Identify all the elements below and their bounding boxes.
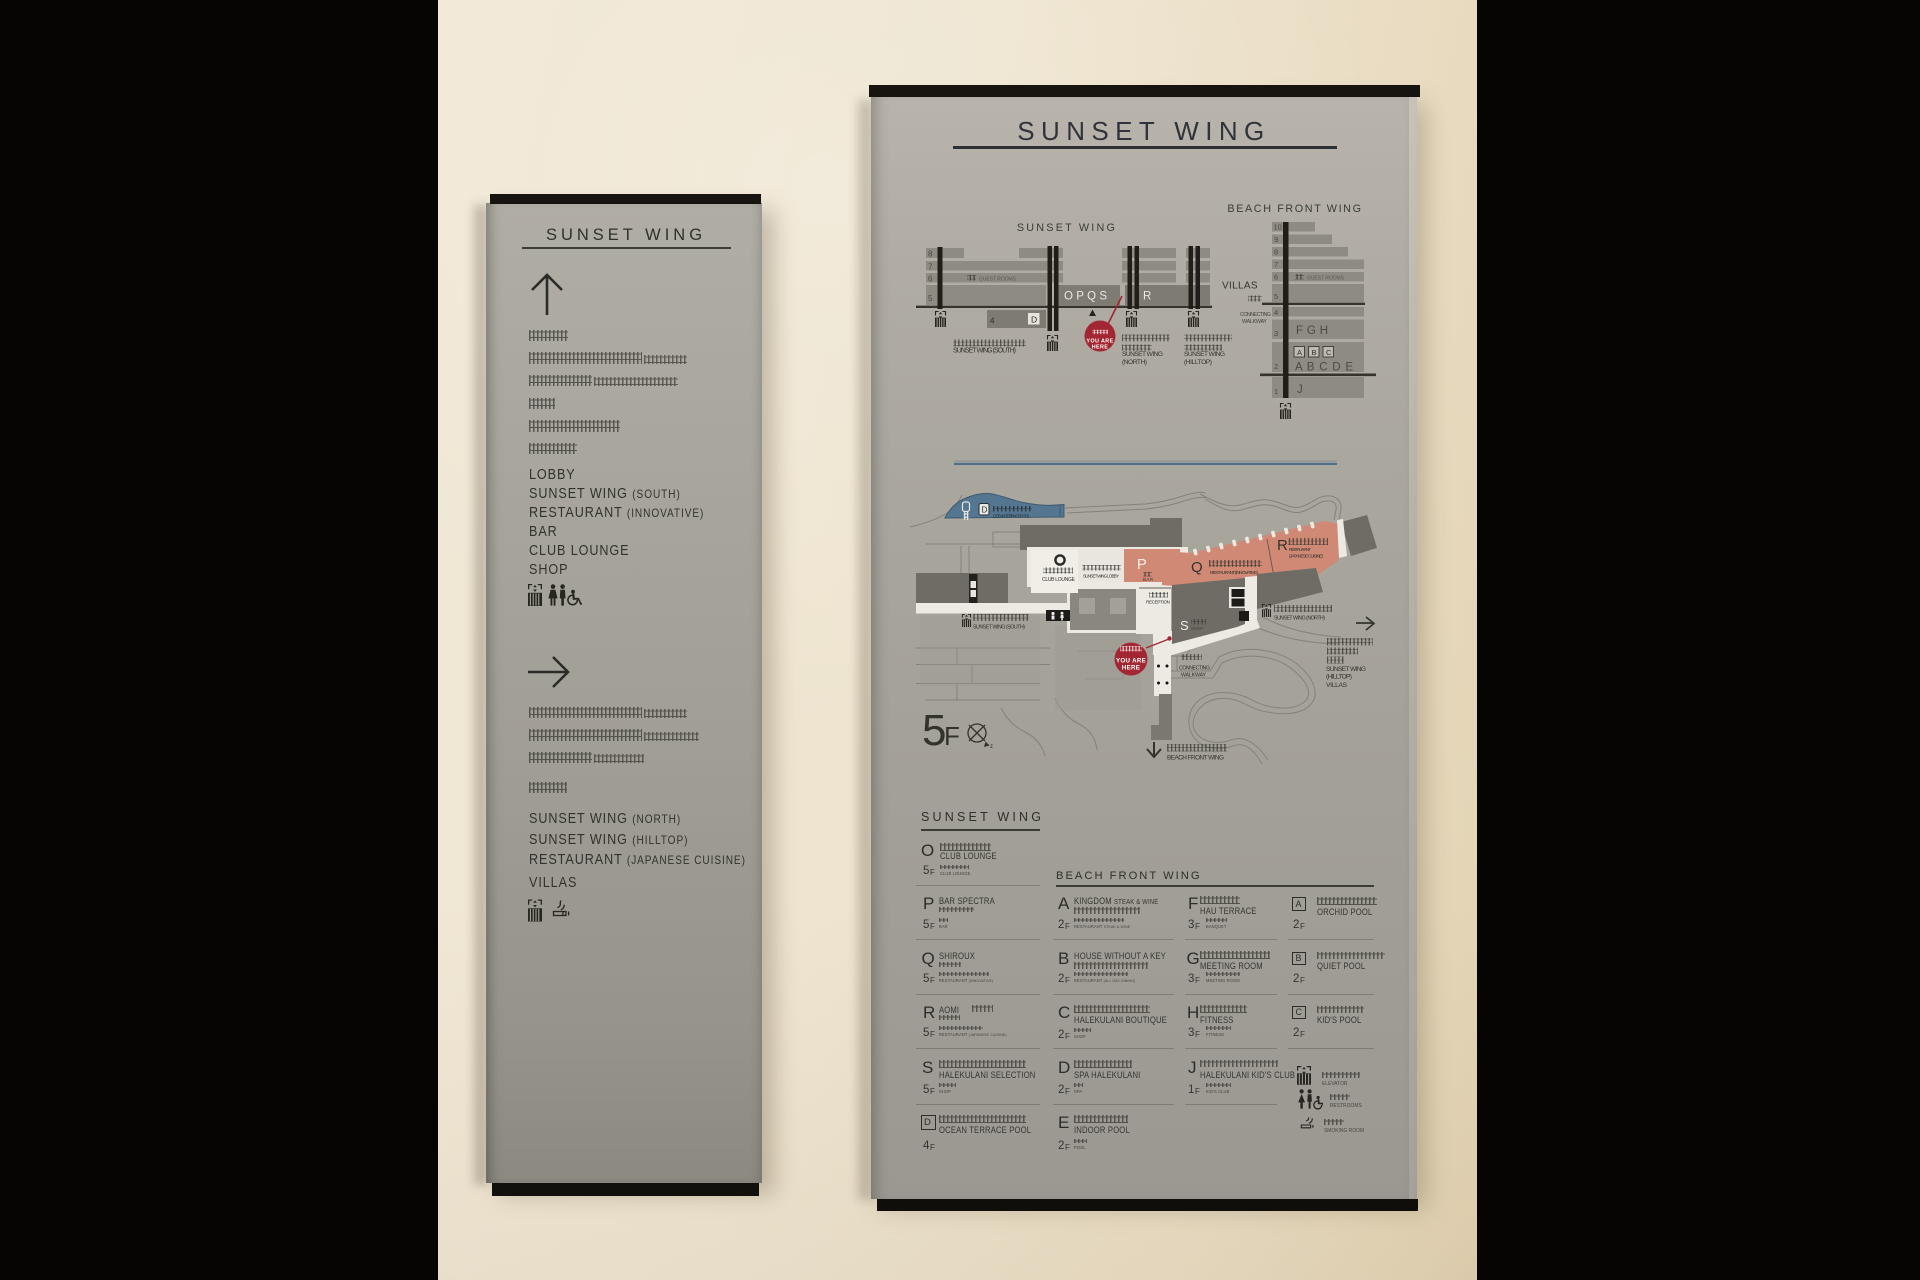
svg-text:5: 5 (922, 706, 946, 755)
svg-text:YOU ARE: YOU ARE (1116, 658, 1146, 665)
svg-text:GUEST ROOMS: GUEST ROOMS (1307, 276, 1345, 282)
svg-text:RESTAURANT: RESTAURANT (1289, 547, 1311, 552)
svg-text:D: D (982, 505, 988, 514)
svg-text:B: B (1312, 348, 1317, 357)
svg-text:SUNSET WING LOBBY: SUNSET WING LOBBY (1083, 574, 1119, 579)
svg-text:F: F (944, 721, 960, 751)
svg-text:8: 8 (928, 250, 933, 259)
svg-text:CLUB LOUNGE: CLUB LOUNGE (1042, 577, 1076, 583)
svg-text:S: S (1180, 618, 1189, 633)
svg-text:BEACH FRONT WING: BEACH FRONT WING (1227, 203, 1362, 215)
svg-text:A: A (1297, 348, 1302, 357)
svg-text:CONNECTING: CONNECTING (1240, 312, 1271, 318)
svg-text:BEACH FRONT WING: BEACH FRONT WING (1167, 755, 1224, 762)
svg-text:(NORTH): (NORTH) (1122, 359, 1147, 366)
svg-text:WALKWAY: WALKWAY (1242, 319, 1267, 325)
svg-text:4: 4 (990, 317, 995, 326)
svg-text:SUNSET WING (NORTH): SUNSET WING (NORTH) (1274, 616, 1325, 622)
svg-text:J: J (1297, 384, 1303, 396)
svg-text:VILLAS: VILLAS (1222, 281, 1259, 292)
svg-text:A B C D E: A B C D E (1295, 362, 1356, 374)
svg-text:SUNSET WING: SUNSET WING (1326, 666, 1366, 673)
svg-text:6: 6 (928, 275, 933, 284)
svg-text:RECEPTION: RECEPTION (1146, 600, 1170, 605)
svg-text:F G H: F G H (1296, 325, 1331, 337)
svg-text:HERE: HERE (1092, 345, 1109, 351)
svg-text:C: C (1326, 348, 1332, 357)
svg-text:VILLAS: VILLAS (1326, 682, 1348, 689)
svg-text:RESTAURANT (INNOVATIVE): RESTAURANT (INNOVATIVE) (1210, 570, 1258, 576)
svg-text:GUEST ROOMS: GUEST ROOMS (979, 277, 1017, 283)
svg-text:(HILLTOP): (HILLTOP) (1184, 359, 1212, 366)
svg-text:5: 5 (928, 294, 933, 303)
svg-text:10: 10 (1274, 223, 1282, 232)
svg-text:7: 7 (928, 263, 933, 272)
svg-text:BAR: BAR (1143, 577, 1153, 582)
svg-text:P: P (1137, 557, 1147, 573)
svg-text:Q: Q (1191, 559, 1203, 576)
svg-text:4: 4 (1274, 308, 1278, 317)
svg-text:(HILLTOP): (HILLTOP) (1326, 674, 1352, 681)
svg-text:SHOP: SHOP (1191, 626, 1203, 631)
svg-text:WALKWAY: WALKWAY (1181, 673, 1207, 679)
svg-text:R: R (1143, 291, 1151, 303)
svg-text:SUNSET WING: SUNSET WING (1122, 351, 1163, 358)
svg-text:7: 7 (1274, 260, 1278, 269)
svg-text:5: 5 (1274, 292, 1278, 301)
svg-text:9: 9 (1274, 235, 1278, 244)
svg-text:8: 8 (1274, 248, 1278, 257)
svg-text:SUNSET WING (SOUTH): SUNSET WING (SOUTH) (973, 625, 1025, 631)
svg-text:z: z (990, 744, 993, 750)
svg-text:SUNSET WING: SUNSET WING (1184, 351, 1225, 358)
svg-text:3: 3 (1274, 329, 1278, 338)
svg-text:HERE: HERE (1122, 665, 1140, 672)
svg-text:R: R (1277, 537, 1288, 554)
svg-text:OPQS: OPQS (1064, 291, 1111, 303)
svg-text:D: D (1031, 315, 1037, 325)
svg-text:1: 1 (1274, 387, 1278, 396)
svg-text:OCEAN TERRACE POOL: OCEAN TERRACE POOL (993, 514, 1030, 519)
svg-text:CONNECTING: CONNECTING (1179, 666, 1210, 672)
svg-text:(JAPANESE CUISINE): (JAPANESE CUISINE) (1289, 554, 1323, 559)
svg-text:SUNSET WING (SOUTH): SUNSET WING (SOUTH) (953, 348, 1016, 355)
svg-text:6: 6 (1274, 273, 1278, 282)
svg-text:2: 2 (1274, 362, 1278, 371)
svg-text:SUNSET WING: SUNSET WING (1017, 222, 1117, 234)
